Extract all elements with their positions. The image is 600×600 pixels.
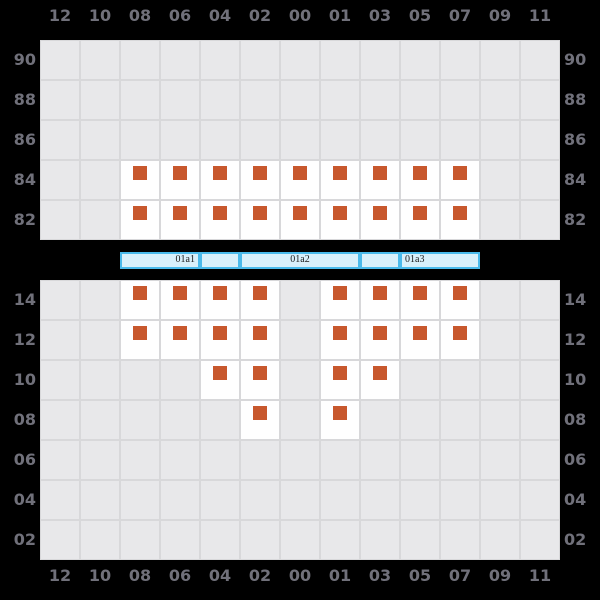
slot-cell	[360, 480, 400, 520]
y-axis-label: 08	[564, 400, 600, 440]
occupied-marker	[213, 286, 227, 300]
slot-cell	[80, 40, 120, 80]
slot-cell[interactable]	[400, 200, 440, 240]
slot-cell	[480, 280, 520, 320]
band-segment	[360, 252, 400, 269]
y-axis-label: 86	[564, 120, 600, 160]
occupied-marker	[373, 366, 387, 380]
slot-cell	[40, 200, 80, 240]
slot-cell	[40, 80, 80, 120]
occupied-marker	[453, 326, 467, 340]
occupied-marker	[333, 406, 347, 420]
slot-cell	[80, 520, 120, 560]
slot-cell	[80, 320, 120, 360]
occupied-marker	[413, 286, 427, 300]
slot-cell	[480, 40, 520, 80]
slot-cell[interactable]	[440, 320, 480, 360]
slot-cell	[440, 360, 480, 400]
occupied-marker	[453, 166, 467, 180]
x-axis-label: 08	[120, 0, 160, 31]
occupied-marker	[453, 286, 467, 300]
x-axis-label: 08	[120, 560, 160, 592]
slot-cell	[80, 480, 120, 520]
slot-cell	[280, 400, 320, 440]
slot-cell	[160, 40, 200, 80]
slot-cell[interactable]	[240, 400, 280, 440]
slot-cell	[400, 520, 440, 560]
y-axis-label: 04	[0, 480, 36, 520]
slot-cell[interactable]	[320, 200, 360, 240]
occupied-marker	[253, 326, 267, 340]
slot-cell	[320, 520, 360, 560]
slot-cell	[440, 480, 480, 520]
slot-cell[interactable]	[200, 320, 240, 360]
slot-cell	[520, 520, 560, 560]
slot-cell	[200, 520, 240, 560]
slot-cell	[280, 80, 320, 120]
slot-cell	[160, 480, 200, 520]
y-axis-label: 90	[0, 40, 36, 80]
slot-cell	[360, 440, 400, 480]
x-axis-label: 03	[360, 560, 400, 592]
occupied-marker	[213, 166, 227, 180]
x-axis-label: 00	[280, 560, 320, 592]
x-axis-label: 06	[160, 0, 200, 31]
slot-cell	[520, 480, 560, 520]
occupied-marker	[333, 206, 347, 220]
band-segment	[200, 252, 240, 269]
occupied-marker	[253, 366, 267, 380]
y-axis-label: 84	[0, 160, 36, 200]
slot-cell	[520, 360, 560, 400]
y-axis-label: 82	[564, 200, 600, 240]
slot-cell	[80, 160, 120, 200]
slot-cell[interactable]	[320, 280, 360, 320]
slot-cell	[400, 480, 440, 520]
slot-cell	[80, 440, 120, 480]
slot-cell	[40, 360, 80, 400]
y-axis-label: 12	[0, 320, 36, 360]
slot-cell	[440, 80, 480, 120]
band-segment[interactable]: 01a3	[400, 252, 480, 269]
slot-cell	[520, 280, 560, 320]
slot-cell	[120, 120, 160, 160]
occupied-marker	[253, 286, 267, 300]
slot-cell	[280, 440, 320, 480]
occupied-marker	[253, 406, 267, 420]
section-band: 01a101a201a3	[120, 252, 480, 269]
slot-cell	[160, 400, 200, 440]
slot-cell[interactable]	[440, 160, 480, 200]
slot-cell	[400, 120, 440, 160]
occupied-marker	[133, 206, 147, 220]
slot-cell[interactable]	[240, 320, 280, 360]
y-axis-label: 84	[564, 160, 600, 200]
slot-cell	[240, 440, 280, 480]
slot-cell	[200, 440, 240, 480]
y-axis-label: 88	[564, 80, 600, 120]
x-axis-label: 10	[80, 0, 120, 31]
slot-cell[interactable]	[240, 200, 280, 240]
slot-cell[interactable]	[200, 360, 240, 400]
occupied-marker	[373, 166, 387, 180]
y-axis-label: 10	[564, 360, 600, 400]
occupied-marker	[173, 166, 187, 180]
slot-cell[interactable]	[120, 160, 160, 200]
y-axis-label: 04	[564, 480, 600, 520]
occupancy-chart: 12100806040200010305070911 01a101a201a3 …	[0, 0, 600, 600]
slot-cell	[120, 520, 160, 560]
slot-cell[interactable]	[320, 360, 360, 400]
occupied-marker	[173, 206, 187, 220]
slot-cell	[280, 280, 320, 320]
slot-cell	[520, 120, 560, 160]
slot-cell[interactable]	[160, 200, 200, 240]
slot-cell[interactable]	[200, 160, 240, 200]
y-axis-label: 86	[0, 120, 36, 160]
slot-cell	[240, 120, 280, 160]
occupied-marker	[333, 326, 347, 340]
x-axis-label: 09	[480, 0, 520, 31]
slot-cell	[120, 80, 160, 120]
slot-cell	[160, 440, 200, 480]
y-axis-label: 06	[564, 440, 600, 480]
slot-cell	[240, 520, 280, 560]
slot-cell	[440, 440, 480, 480]
slot-cell[interactable]	[320, 160, 360, 200]
slot-cell	[120, 40, 160, 80]
slot-cell	[520, 200, 560, 240]
slot-cell	[120, 360, 160, 400]
occupied-marker	[173, 326, 187, 340]
slot-cell[interactable]	[400, 320, 440, 360]
slot-cell	[520, 440, 560, 480]
x-axis-label: 09	[480, 560, 520, 592]
x-axis-label: 11	[520, 0, 560, 31]
slot-cell	[40, 280, 80, 320]
x-axis-label: 04	[200, 0, 240, 31]
slot-cell	[400, 40, 440, 80]
x-axis-label: 06	[160, 560, 200, 592]
slot-cell	[280, 360, 320, 400]
slot-cell	[40, 400, 80, 440]
slot-cell[interactable]	[120, 280, 160, 320]
slot-cell	[40, 440, 80, 480]
slot-cell	[520, 320, 560, 360]
slot-cell[interactable]	[200, 200, 240, 240]
top-grid-panel	[40, 40, 560, 240]
occupied-marker	[253, 206, 267, 220]
occupied-marker	[333, 166, 347, 180]
slot-cell	[80, 80, 120, 120]
slot-cell	[440, 400, 480, 440]
occupied-marker	[373, 286, 387, 300]
x-axis-label: 12	[40, 0, 80, 31]
occupied-marker	[453, 206, 467, 220]
x-axis-label: 02	[240, 560, 280, 592]
slot-cell	[80, 400, 120, 440]
x-axis-label: 07	[440, 560, 480, 592]
x-axis-label: 04	[200, 560, 240, 592]
slot-cell	[280, 480, 320, 520]
slot-cell	[400, 360, 440, 400]
slot-cell	[240, 80, 280, 120]
occupied-marker	[413, 206, 427, 220]
slot-cell[interactable]	[200, 280, 240, 320]
slot-cell[interactable]	[120, 200, 160, 240]
slot-cell	[40, 160, 80, 200]
slot-cell	[480, 360, 520, 400]
slot-cell[interactable]	[280, 160, 320, 200]
y-axis-label: 02	[0, 520, 36, 560]
slot-cell	[360, 120, 400, 160]
slot-cell	[480, 160, 520, 200]
slot-cell	[200, 480, 240, 520]
slot-cell	[480, 480, 520, 520]
x-axis-label: 11	[520, 560, 560, 592]
slot-cell	[320, 80, 360, 120]
slot-cell	[160, 120, 200, 160]
x-axis-label: 10	[80, 560, 120, 592]
slot-cell	[40, 40, 80, 80]
band-segment[interactable]: 01a1	[120, 252, 200, 269]
y-axis-label: 82	[0, 200, 36, 240]
slot-cell	[360, 400, 400, 440]
slot-cell	[440, 40, 480, 80]
x-axis-label: 07	[440, 0, 480, 31]
x-axis-label: 02	[240, 0, 280, 31]
slot-cell	[40, 320, 80, 360]
slot-cell[interactable]	[160, 280, 200, 320]
occupied-marker	[133, 286, 147, 300]
y-axis-label: 02	[564, 520, 600, 560]
slot-cell[interactable]	[360, 320, 400, 360]
x-axis-label: 05	[400, 0, 440, 31]
slot-cell	[160, 360, 200, 400]
slot-cell	[80, 120, 120, 160]
occupied-marker	[253, 166, 267, 180]
y-axis-label: 14	[564, 280, 600, 320]
slot-cell	[120, 400, 160, 440]
slot-cell	[120, 480, 160, 520]
x-axis-label: 05	[400, 560, 440, 592]
slot-cell	[80, 360, 120, 400]
y-axis-label: 12	[564, 320, 600, 360]
slot-cell	[520, 400, 560, 440]
slot-cell	[480, 120, 520, 160]
slot-cell	[360, 520, 400, 560]
occupied-marker	[333, 366, 347, 380]
slot-cell	[280, 520, 320, 560]
slot-cell	[120, 440, 160, 480]
slot-cell	[160, 520, 200, 560]
x-axis-label: 03	[360, 0, 400, 31]
slot-cell	[360, 80, 400, 120]
slot-cell[interactable]	[240, 280, 280, 320]
slot-cell	[320, 480, 360, 520]
x-axis-label: 00	[280, 0, 320, 31]
bottom-grid-panel	[40, 280, 560, 560]
slot-cell	[360, 40, 400, 80]
slot-cell[interactable]	[440, 200, 480, 240]
occupied-marker	[293, 166, 307, 180]
slot-cell[interactable]	[240, 160, 280, 200]
slot-cell	[480, 520, 520, 560]
slot-cell	[200, 120, 240, 160]
slot-cell	[520, 160, 560, 200]
x-axis-label: 01	[320, 560, 360, 592]
slot-cell[interactable]	[160, 160, 200, 200]
slot-cell	[320, 40, 360, 80]
occupied-marker	[213, 206, 227, 220]
slot-cell	[440, 520, 480, 560]
slot-cell	[200, 400, 240, 440]
band-segment[interactable]: 01a2	[240, 252, 360, 269]
slot-cell[interactable]	[280, 200, 320, 240]
slot-cell[interactable]	[160, 320, 200, 360]
slot-cell	[520, 80, 560, 120]
slot-cell	[480, 320, 520, 360]
slot-cell[interactable]	[360, 360, 400, 400]
occupied-marker	[293, 206, 307, 220]
y-axis-label: 88	[0, 80, 36, 120]
slot-cell	[440, 120, 480, 160]
occupied-marker	[333, 286, 347, 300]
slot-cell	[280, 120, 320, 160]
slot-cell	[480, 80, 520, 120]
slot-cell	[520, 40, 560, 80]
slot-cell[interactable]	[120, 320, 160, 360]
slot-cell	[40, 480, 80, 520]
slot-cell	[480, 400, 520, 440]
y-axis-label: 06	[0, 440, 36, 480]
x-axis-label: 12	[40, 560, 80, 592]
slot-cell[interactable]	[400, 160, 440, 200]
slot-cell	[280, 320, 320, 360]
occupied-marker	[213, 366, 227, 380]
slot-cell[interactable]	[240, 360, 280, 400]
slot-cell	[80, 200, 120, 240]
slot-cell[interactable]	[360, 160, 400, 200]
slot-cell	[80, 280, 120, 320]
slot-cell[interactable]	[360, 280, 400, 320]
occupied-marker	[133, 326, 147, 340]
y-axis-label: 10	[0, 360, 36, 400]
occupied-marker	[373, 206, 387, 220]
slot-cell[interactable]	[400, 280, 440, 320]
slot-cell[interactable]	[360, 200, 400, 240]
occupied-marker	[133, 166, 147, 180]
slot-cell[interactable]	[440, 280, 480, 320]
slot-cell	[200, 40, 240, 80]
slot-cell	[400, 400, 440, 440]
slot-cell	[200, 80, 240, 120]
slot-cell	[160, 80, 200, 120]
y-axis-label: 08	[0, 400, 36, 440]
occupied-marker	[413, 166, 427, 180]
occupied-marker	[173, 286, 187, 300]
slot-cell	[480, 200, 520, 240]
slot-cell	[280, 40, 320, 80]
slot-cell	[240, 40, 280, 80]
slot-cell[interactable]	[320, 400, 360, 440]
x-axis-label: 01	[320, 0, 360, 31]
slot-cell	[400, 440, 440, 480]
occupied-marker	[373, 326, 387, 340]
y-axis-label: 90	[564, 40, 600, 80]
slot-cell	[240, 480, 280, 520]
slot-cell	[480, 440, 520, 480]
y-axis-label: 14	[0, 280, 36, 320]
slot-cell	[320, 120, 360, 160]
slot-cell	[400, 80, 440, 120]
occupied-marker	[413, 326, 427, 340]
slot-cell	[40, 520, 80, 560]
slot-cell[interactable]	[320, 320, 360, 360]
occupied-marker	[213, 326, 227, 340]
slot-cell	[40, 120, 80, 160]
slot-cell	[320, 440, 360, 480]
